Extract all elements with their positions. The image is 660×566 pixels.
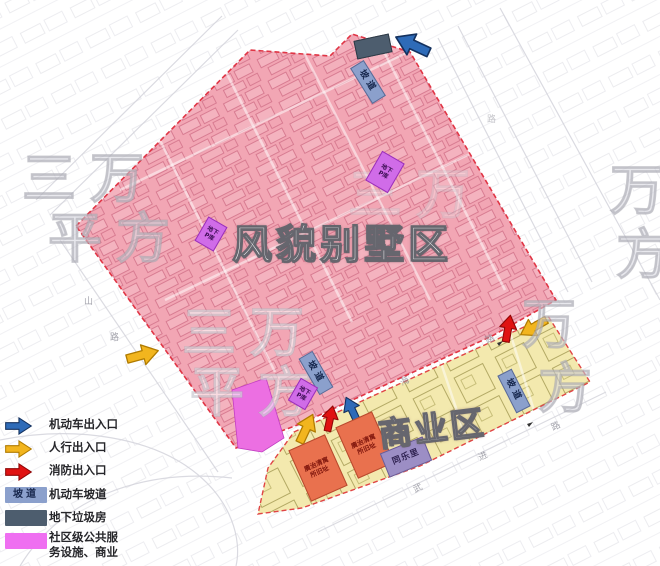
pedestrian-entrance-arrow-icon xyxy=(0,440,38,458)
villa-area-label: 风貌别墅区 xyxy=(232,212,452,270)
road-label-char: 路 xyxy=(110,330,119,343)
legend-row-community-service: 社区级公共服 务设施、商业 xyxy=(0,530,118,560)
legend-label: 机动车坡道 xyxy=(49,487,107,502)
site-plan-map: 三万 平方 三万 平方 三万 万 方 万 方 坡道 坡道 坡道 地下 P库 地下… xyxy=(0,0,660,566)
legend-label-line1: 社区级公共服 xyxy=(49,530,118,545)
legend-row-garbage-room: 地下垃圾房 xyxy=(0,510,107,525)
garbage-chip-icon xyxy=(5,510,47,526)
legend-row-vehicle-ramp: 坡道 机动车坡道 xyxy=(0,487,107,502)
community-service-chip-icon xyxy=(5,533,47,549)
legend-row-vehicle-entrance: 机动车出入口 xyxy=(0,417,118,432)
ramp-chip-icon: 坡道 xyxy=(5,487,47,503)
legend-row-pedestrian-entrance: 人行出入口 xyxy=(0,440,107,455)
fire-entrance-arrow-icon xyxy=(0,463,38,481)
legend-label: 人行出入口 xyxy=(49,440,107,455)
road-label-char: 山 xyxy=(84,294,93,307)
legend-label: 地下垃圾房 xyxy=(49,510,107,525)
legend-label: 机动车出入口 xyxy=(49,417,118,432)
vehicle-entrance-arrow-icon xyxy=(0,417,38,435)
legend-label: 消防出入口 xyxy=(49,463,107,478)
road-label-char: 路 xyxy=(487,112,496,125)
legend-label-line2: 务设施、商业 xyxy=(49,545,118,560)
legend-row-fire-entrance: 消防出入口 xyxy=(0,463,107,478)
